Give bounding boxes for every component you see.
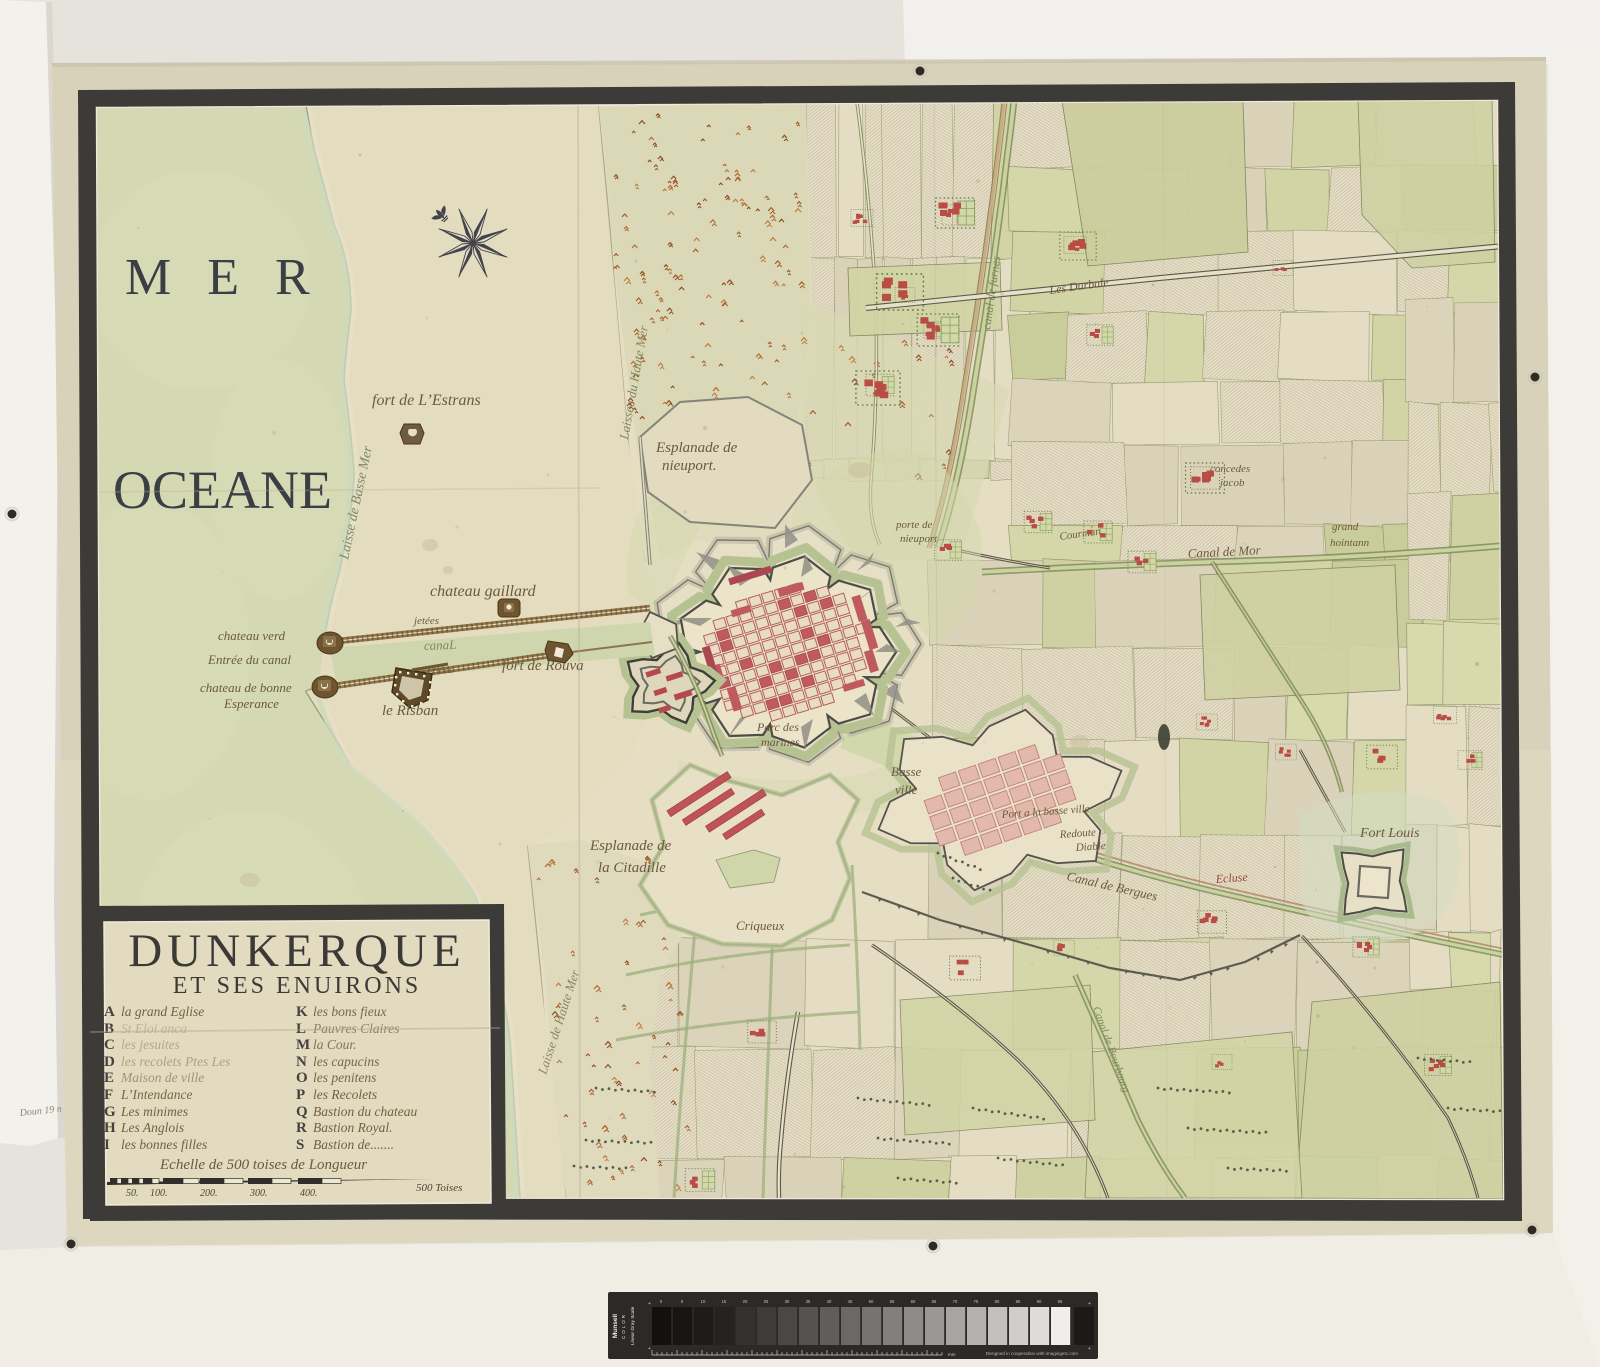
svg-text:Bastion du chateau: Bastion du chateau — [313, 1104, 417, 1119]
svg-text:hointann: hointann — [1330, 537, 1370, 549]
svg-text:70: 70 — [953, 1299, 958, 1304]
svg-text:H: H — [104, 1120, 116, 1136]
svg-text:20: 20 — [743, 1299, 748, 1304]
svg-text:mm: mm — [948, 1352, 956, 1357]
svg-text:35: 35 — [806, 1299, 811, 1304]
svg-text:Entrée du canal: Entrée du canal — [207, 652, 291, 667]
svg-text:+: + — [1088, 1301, 1091, 1307]
svg-text:Bastion de.......: Bastion de....... — [313, 1137, 394, 1152]
svg-text:O: O — [296, 1070, 308, 1086]
svg-text:jetées: jetées — [426, 664, 453, 676]
svg-text:75: 75 — [974, 1299, 979, 1304]
svg-text:concedes: concedes — [1210, 463, 1250, 475]
svg-text:E: E — [104, 1070, 114, 1086]
svg-text:DUNKERQUE: DUNKERQUE — [128, 925, 465, 977]
svg-text:chateau gaillard: chateau gaillard — [430, 583, 537, 600]
svg-text:R: R — [296, 1120, 307, 1136]
svg-text:la Citadille: la Citadille — [598, 860, 666, 876]
svg-text:80: 80 — [995, 1299, 1000, 1304]
svg-text:ET SES ENUIRONS: ET SES ENUIRONS — [173, 973, 422, 999]
svg-text:St Eloi anca: St Eloi anca — [121, 1021, 187, 1036]
svg-text:nieuport: nieuport — [900, 533, 938, 545]
svg-text:95: 95 — [1058, 1299, 1063, 1304]
svg-text:chateau de bonne: chateau de bonne — [200, 680, 292, 695]
svg-text:marines: marines — [761, 735, 800, 749]
svg-text:Esperance: Esperance — [223, 696, 279, 711]
svg-text:40: 40 — [827, 1299, 832, 1304]
svg-text:Fort Louis: Fort Louis — [1359, 826, 1420, 841]
svg-text:chateau verd: chateau verd — [218, 628, 286, 643]
svg-text:200.: 200. — [200, 1188, 218, 1199]
svg-text:K: K — [296, 1004, 308, 1020]
svg-text:B: B — [104, 1021, 114, 1037]
svg-text:Linear Gray Scale: Linear Gray Scale — [630, 1306, 636, 1345]
svg-text:10: 10 — [701, 1299, 706, 1304]
svg-text:I: I — [104, 1137, 110, 1153]
svg-text:50: 50 — [869, 1299, 874, 1304]
svg-text:canaL: canaL — [424, 637, 457, 653]
svg-text:MER: MER — [125, 249, 346, 306]
svg-text:90: 90 — [1037, 1299, 1042, 1304]
svg-text:Les Anglois: Les Anglois — [120, 1120, 184, 1135]
svg-text:jacob: jacob — [1218, 477, 1245, 489]
svg-text:85: 85 — [1016, 1299, 1021, 1304]
svg-text:65: 65 — [932, 1299, 937, 1304]
svg-text:500 Toises: 500 Toises — [416, 1182, 462, 1194]
svg-text:+: + — [648, 1346, 651, 1352]
svg-text:Designed in cooperation with i: Designed in cooperation with imagingetc.… — [986, 1351, 1079, 1356]
svg-text:Esplanade de: Esplanade de — [589, 838, 672, 854]
svg-text:+: + — [648, 1301, 651, 1307]
svg-text:les bons fieux: les bons fieux — [313, 1004, 387, 1019]
svg-text:N: N — [296, 1054, 307, 1070]
svg-text:C: C — [104, 1037, 115, 1053]
svg-text:Parc des: Parc des — [756, 720, 799, 734]
svg-text:G: G — [104, 1104, 116, 1120]
svg-text:F: F — [104, 1087, 113, 1103]
svg-text:Les minimes: Les minimes — [120, 1104, 188, 1119]
svg-text:60: 60 — [911, 1299, 916, 1304]
svg-text:fort de L’Estrans: fort de L’Estrans — [372, 392, 481, 409]
svg-text:100.: 100. — [150, 1188, 168, 1199]
svg-text:Munsell: Munsell — [612, 1314, 619, 1338]
svg-text:30: 30 — [785, 1299, 790, 1304]
svg-text:D: D — [104, 1054, 115, 1070]
svg-text:les bonnes filles: les bonnes filles — [121, 1137, 207, 1152]
svg-text:25: 25 — [764, 1299, 769, 1304]
svg-text:Diable: Diable — [1074, 840, 1106, 854]
svg-text:M: M — [296, 1037, 310, 1053]
svg-text:les Recolets: les Recolets — [313, 1087, 377, 1102]
svg-text:A: A — [104, 1004, 115, 1020]
svg-text:Maison de ville: Maison de ville — [120, 1070, 204, 1085]
svg-text:+: + — [1088, 1346, 1091, 1352]
svg-text:fort de Rouva: fort de Rouva — [502, 658, 584, 674]
svg-text:P: P — [296, 1087, 305, 1103]
svg-text:55: 55 — [890, 1299, 895, 1304]
svg-text:300.: 300. — [249, 1188, 268, 1199]
svg-text:les jesuites: les jesuites — [121, 1037, 180, 1052]
svg-text:50.: 50. — [126, 1188, 139, 1199]
svg-text:le Risban: le Risban — [382, 703, 438, 719]
svg-text:jetées: jetées — [412, 615, 439, 627]
svg-text:45: 45 — [848, 1299, 853, 1304]
svg-text:nieuport.: nieuport. — [662, 458, 717, 474]
svg-text:L’Intendance: L’Intendance — [120, 1087, 192, 1102]
svg-text:Echelle de 500 toises de Longu: Echelle de 500 toises de Longueur — [159, 1157, 367, 1173]
svg-text:grand: grand — [1332, 521, 1359, 533]
svg-text:Ecluse: Ecluse — [1214, 870, 1249, 886]
svg-text:Basse: Basse — [891, 764, 922, 779]
svg-text:la grand Eglise: la grand Eglise — [121, 1004, 204, 1019]
svg-text:Q: Q — [296, 1104, 308, 1120]
svg-text:15: 15 — [722, 1299, 727, 1304]
svg-text:les capucins: les capucins — [313, 1054, 379, 1069]
svg-text:COLOR: COLOR — [621, 1313, 626, 1339]
svg-text:les penitens: les penitens — [313, 1070, 376, 1085]
svg-text:Bastion Royal.: Bastion Royal. — [313, 1120, 393, 1135]
svg-text:ville: ville — [895, 782, 918, 797]
svg-text:S: S — [296, 1137, 304, 1153]
svg-text:Criqueux: Criqueux — [736, 918, 785, 933]
svg-text:400.: 400. — [300, 1188, 318, 1199]
svg-text:les recolets Ptes Les: les recolets Ptes Les — [121, 1054, 230, 1069]
svg-text:Esplanade de: Esplanade de — [655, 440, 738, 456]
svg-text:la Cour.: la Cour. — [313, 1037, 357, 1052]
svg-text:porte de: porte de — [895, 519, 932, 531]
svg-text:L: L — [296, 1021, 306, 1037]
